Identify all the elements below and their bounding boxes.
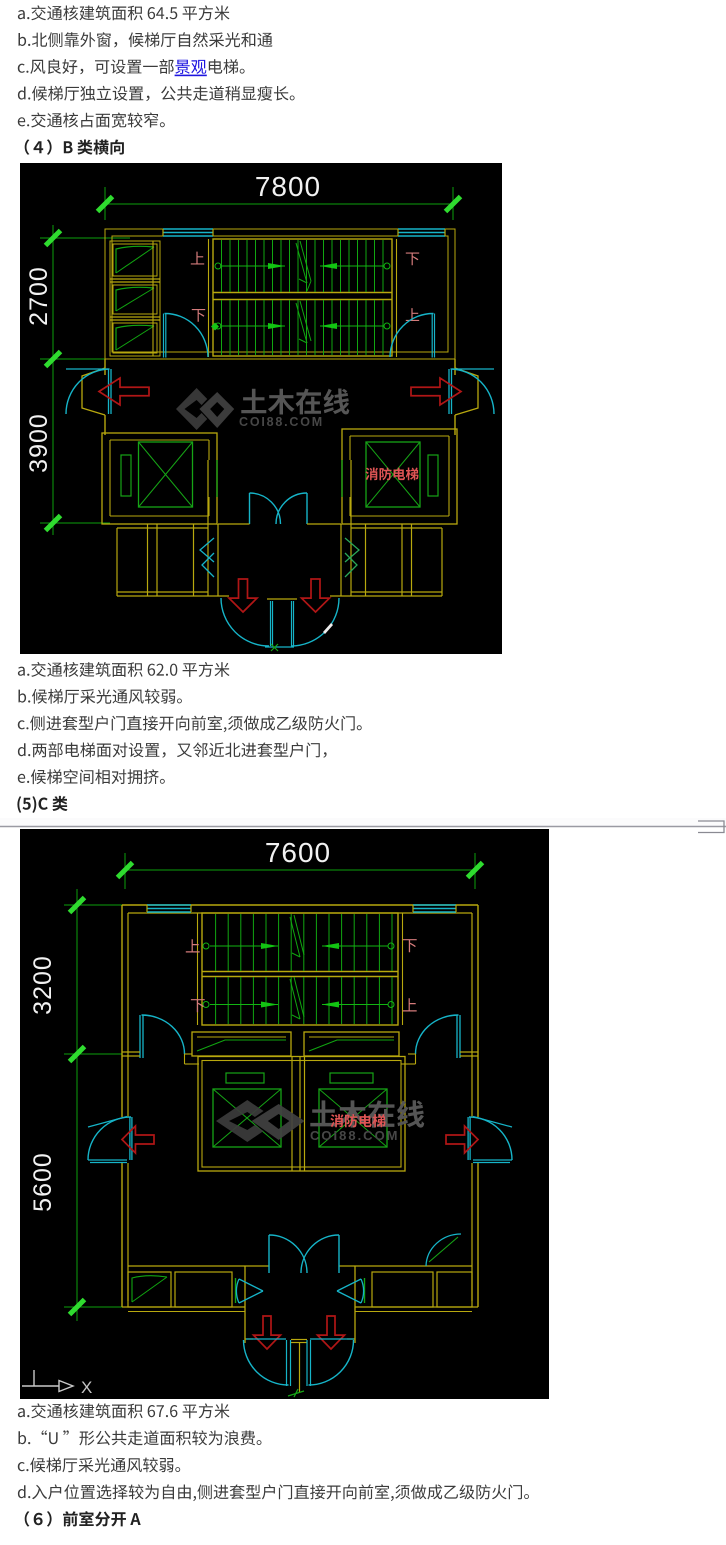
svg-text:5600: 5600 — [29, 1152, 57, 1212]
svg-text:COI88.COM: COI88.COM — [239, 415, 324, 429]
svg-text:3900: 3900 — [25, 413, 53, 473]
svg-text:3200: 3200 — [29, 955, 57, 1015]
svg-text:2700: 2700 — [25, 266, 53, 326]
svg-text:X: X — [81, 1378, 92, 1397]
svg-text:7800: 7800 — [255, 171, 321, 202]
svg-text:7600: 7600 — [265, 837, 331, 868]
svg-text:COI88.COM: COI88.COM — [310, 1128, 400, 1143]
